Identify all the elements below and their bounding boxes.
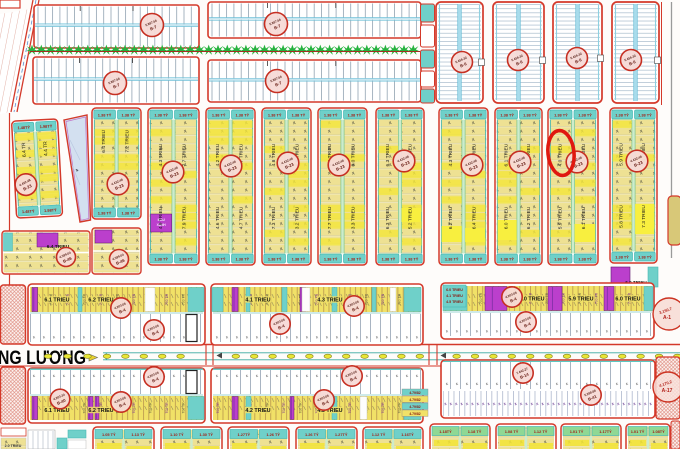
svg-text:1.38 TỶ: 1.38 TỶ (615, 254, 629, 259)
svg-text:6.0 TRIEU: 6.0 TRIEU (446, 288, 463, 292)
svg-text:5.9 TRIEU: 5.9 TRIEU (558, 206, 564, 229)
svg-text:1.10 TỶ: 1.10 TỶ (170, 432, 184, 437)
svg-text:700 TR: 700 TR (381, 293, 385, 305)
svg-text:1.38 TỶ: 1.38 TỶ (292, 112, 306, 117)
svg-text:1.38 TỶ: 1.38 TỶ (554, 256, 568, 261)
svg-text:4.1 TRIEU: 4.1 TRIEU (446, 294, 463, 298)
svg-text:700 TR: 700 TR (381, 402, 385, 414)
svg-text:5.9 TRIEU: 5.9 TRIEU (568, 297, 593, 303)
svg-text:4.8 TRIEU: 4.8 TRIEU (271, 143, 277, 166)
svg-text:1.38 TỶ: 1.38 TỶ (324, 256, 338, 261)
svg-text:2.0 TRIEU: 2.0 TRIEU (5, 444, 22, 448)
svg-text:1.27TỶ: 1.27TỶ (238, 432, 251, 437)
svg-text:700 TR: 700 TR (398, 293, 402, 305)
svg-text:6.3 TRIEU: 6.3 TRIEU (385, 206, 391, 229)
svg-text:4.79/82: 4.79/82 (409, 391, 420, 395)
svg-text:6.4 TRIEU: 6.4 TRIEU (101, 129, 107, 152)
svg-text:700 TR: 700 TR (165, 293, 169, 305)
svg-text:7.9 TRIEU: 7.9 TRIEU (182, 206, 188, 229)
svg-text:1.38 TỶ: 1.38 TỶ (638, 254, 652, 259)
svg-text:700 TR: 700 TR (132, 402, 136, 414)
svg-text:1.38 TỶ: 1.38 TỶ (98, 210, 112, 215)
svg-text:1.13 TỶ: 1.13 TỶ (131, 432, 145, 437)
svg-text:5.8 TRIEU: 5.8 TRIEU (619, 205, 625, 228)
svg-text:1.38 TỶ: 1.38 TỶ (500, 256, 514, 261)
svg-text:A-1: A-1 (663, 315, 671, 321)
svg-text:1.38 TỶ: 1.38 TỶ (235, 256, 249, 261)
svg-text:1.18TỶ: 1.18TỶ (439, 429, 452, 434)
svg-text:1.38 TỶ: 1.38 TỶ (500, 112, 514, 117)
svg-text:1.98TỶ: 1.98TỶ (44, 207, 57, 213)
svg-text:700 TR: 700 TR (398, 402, 402, 414)
svg-text:1.38 TỶ: 1.38 TỶ (445, 256, 459, 261)
svg-text:1.38 TỶ: 1.38 TỶ (212, 256, 226, 261)
svg-text:5.9 TRIEU: 5.9 TRIEU (619, 143, 625, 166)
svg-text:8.0 TRIEU: 8.0 TRIEU (350, 143, 356, 166)
svg-text:4.2 TRIEU: 4.2 TRIEU (245, 408, 270, 414)
svg-text:1.38 TỶ: 1.38 TỶ (469, 256, 483, 261)
svg-text:1.38 TỶ: 1.38 TỶ (348, 256, 362, 261)
svg-text:1.26 TỶ: 1.26 TỶ (305, 432, 319, 437)
svg-text:1.38 TỶ: 1.38 TỶ (615, 112, 629, 117)
svg-text:1.18 TỶ: 1.18 TỶ (468, 429, 482, 434)
svg-text:1.38 TỶ: 1.38 TỶ (235, 112, 249, 117)
svg-text:1.30 TỶ: 1.30 TỶ (199, 432, 213, 437)
svg-text:1.38 TỶ: 1.38 TỶ (348, 112, 362, 117)
svg-text:6.0 TRIEU: 6.0 TRIEU (504, 206, 510, 229)
svg-text:4.5 TRIEU: 4.5 TRIEU (446, 300, 463, 304)
svg-text:3.3 TRIEU: 3.3 TRIEU (350, 206, 356, 229)
svg-text:1.38 TỶ: 1.38 TỶ (212, 112, 226, 117)
svg-text:1.26 TỶ: 1.26 TỶ (266, 432, 280, 437)
svg-text:A-17: A-17 (662, 388, 673, 394)
svg-text:6.4 TR: 6.4 TR (21, 142, 28, 157)
svg-text:700 TR: 700 TR (479, 292, 483, 304)
svg-text:1.38 TỶ: 1.38 TỶ (98, 112, 112, 117)
svg-text:4.3 TRIEU: 4.3 TRIEU (317, 298, 342, 304)
svg-text:1.38 TỶ: 1.38 TỶ (523, 112, 537, 117)
svg-text:700 TR: 700 TR (149, 402, 153, 414)
svg-text:6.4 TRIEU: 6.4 TRIEU (471, 206, 477, 229)
svg-text:6.2 TRIEU: 6.2 TRIEU (88, 408, 113, 414)
svg-text:1.38 TỶ: 1.38 TỶ (578, 112, 592, 117)
svg-text:1.38 TỶ: 1.38 TỶ (382, 112, 396, 117)
svg-text:1.38 TỶ: 1.38 TỶ (578, 256, 592, 261)
svg-text:1.38 TỶ: 1.38 TỶ (324, 112, 338, 117)
svg-text:4.79/82: 4.79/82 (409, 398, 420, 402)
svg-text:1.16TỶ: 1.16TỶ (401, 432, 414, 437)
svg-text:7.2 TRIEU: 7.2 TRIEU (124, 129, 130, 152)
svg-text:1.01 TỶ: 1.01 TỶ (631, 429, 645, 434)
svg-text:6.2 TRIEU: 6.2 TRIEU (88, 298, 113, 304)
svg-text:700 TR: 700 TR (182, 293, 186, 305)
svg-text:1.17TỶ: 1.17TỶ (599, 429, 612, 434)
svg-text:4.3 TRIEU: 4.3 TRIEU (158, 143, 164, 166)
svg-text:1.38 TỶ: 1.38 TỶ (268, 256, 282, 261)
svg-text:700 TR: 700 TR (365, 293, 369, 305)
svg-text:1.38 TỶ: 1.38 TỶ (554, 112, 568, 117)
svg-text:1.48TỶ: 1.48TỶ (17, 125, 30, 131)
svg-text:4.0 TRIEU: 4.0 TRIEU (558, 143, 564, 166)
svg-text:1.38 TỶ: 1.38 TỶ (292, 256, 306, 261)
svg-text:3.2 TRIEU: 3.2 TRIEU (294, 206, 300, 229)
svg-text:6.0 TRIEU: 6.0 TRIEU (615, 297, 640, 303)
svg-text:7.7 TRIEU: 7.7 TRIEU (182, 143, 188, 166)
svg-text:1.38 TỶ: 1.38 TỶ (405, 112, 419, 117)
svg-text:1.12 TỶ: 1.12 TỶ (534, 429, 548, 434)
svg-text:1.38 TỶ: 1.38 TỶ (179, 112, 193, 117)
svg-text:7.3 TRIEU: 7.3 TRIEU (641, 205, 647, 228)
svg-text:1.98TỶ: 1.98TỶ (40, 123, 53, 129)
svg-text:700 TR: 700 TR (282, 402, 286, 414)
svg-text:1.38 TỶ: 1.38 TỶ (154, 112, 168, 117)
svg-text:6.2 TRIEU: 6.2 TRIEU (448, 206, 454, 229)
svg-text:7.3 TRIEU: 7.3 TRIEU (271, 206, 277, 229)
svg-text:1.48TỶ: 1.48TỶ (22, 208, 35, 214)
svg-text:700 TR: 700 TR (132, 293, 136, 305)
svg-text:4.9 TRIEU: 4.9 TRIEU (158, 206, 164, 229)
svg-text:1.38 TỶ: 1.38 TỶ (154, 256, 168, 261)
svg-text:1.08TỶ: 1.08TỶ (652, 429, 665, 434)
svg-text:4.3 TRIEU: 4.3 TRIEU (448, 143, 454, 166)
svg-text:700 TR: 700 TR (182, 402, 186, 414)
svg-text:1.38 TỶ: 1.38 TỶ (445, 112, 459, 117)
svg-text:700 TR: 700 TR (348, 402, 352, 414)
svg-text:4.79/82: 4.79/82 (409, 412, 420, 416)
svg-text:700 TR: 700 TR (165, 402, 169, 414)
svg-text:1.12 TỶ: 1.12 TỶ (372, 432, 386, 437)
svg-text:6.0 TRIEU: 6.0 TRIEU (519, 297, 544, 303)
svg-text:4.7 TRIEU: 4.7 TRIEU (238, 206, 244, 229)
svg-text:700 TR: 700 TR (83, 402, 87, 414)
svg-text:4.1 TRIEU: 4.1 TRIEU (245, 298, 270, 304)
svg-text:6.3 TRIEU: 6.3 TRIEU (385, 143, 391, 166)
svg-text:1.38 TỶ: 1.38 TỶ (121, 210, 135, 215)
svg-text:4.6 TRIEU: 4.6 TRIEU (215, 206, 221, 229)
svg-text:7.7 TRIEU: 7.7 TRIEU (327, 206, 333, 229)
svg-text:1.38 TỶ: 1.38 TỶ (638, 112, 652, 117)
svg-text:6.1 TRIEU: 6.1 TRIEU (44, 298, 69, 304)
svg-text:1.38 TỶ: 1.38 TỶ (179, 256, 193, 261)
svg-text:1.05 TỶ: 1.05 TỶ (102, 432, 116, 437)
svg-text:6.2 TRIEU: 6.2 TRIEU (526, 206, 532, 229)
svg-text:1.38 TỶ: 1.38 TỶ (469, 112, 483, 117)
svg-text:1.38 TỶ: 1.38 TỶ (382, 256, 396, 261)
svg-text:6.1 TRIEU: 6.1 TRIEU (581, 206, 587, 229)
svg-text:4.4 TR: 4.4 TR (43, 141, 50, 156)
svg-text:1.08 TỶ: 1.08 TỶ (505, 429, 519, 434)
svg-text:1.38 TỶ: 1.38 TỶ (121, 112, 135, 117)
svg-text:1.27TỶ: 1.27TỶ (335, 432, 348, 437)
svg-text:1.38 TỶ: 1.38 TỶ (268, 112, 282, 117)
svg-text:1.38 TỶ: 1.38 TỶ (523, 256, 537, 261)
svg-text:700 TR: 700 TR (595, 292, 599, 304)
svg-text:700 TR: 700 TR (83, 293, 87, 305)
svg-text:1.01 TỶ: 1.01 TỶ (570, 429, 584, 434)
svg-text:5.2 TRIEU: 5.2 TRIEU (408, 206, 414, 229)
svg-text:700 TR: 700 TR (299, 402, 303, 414)
svg-text:700 TR: 700 TR (216, 402, 220, 414)
svg-text:4.79/82: 4.79/82 (409, 405, 420, 409)
svg-text:1.38 TỶ: 1.38 TỶ (405, 256, 419, 261)
